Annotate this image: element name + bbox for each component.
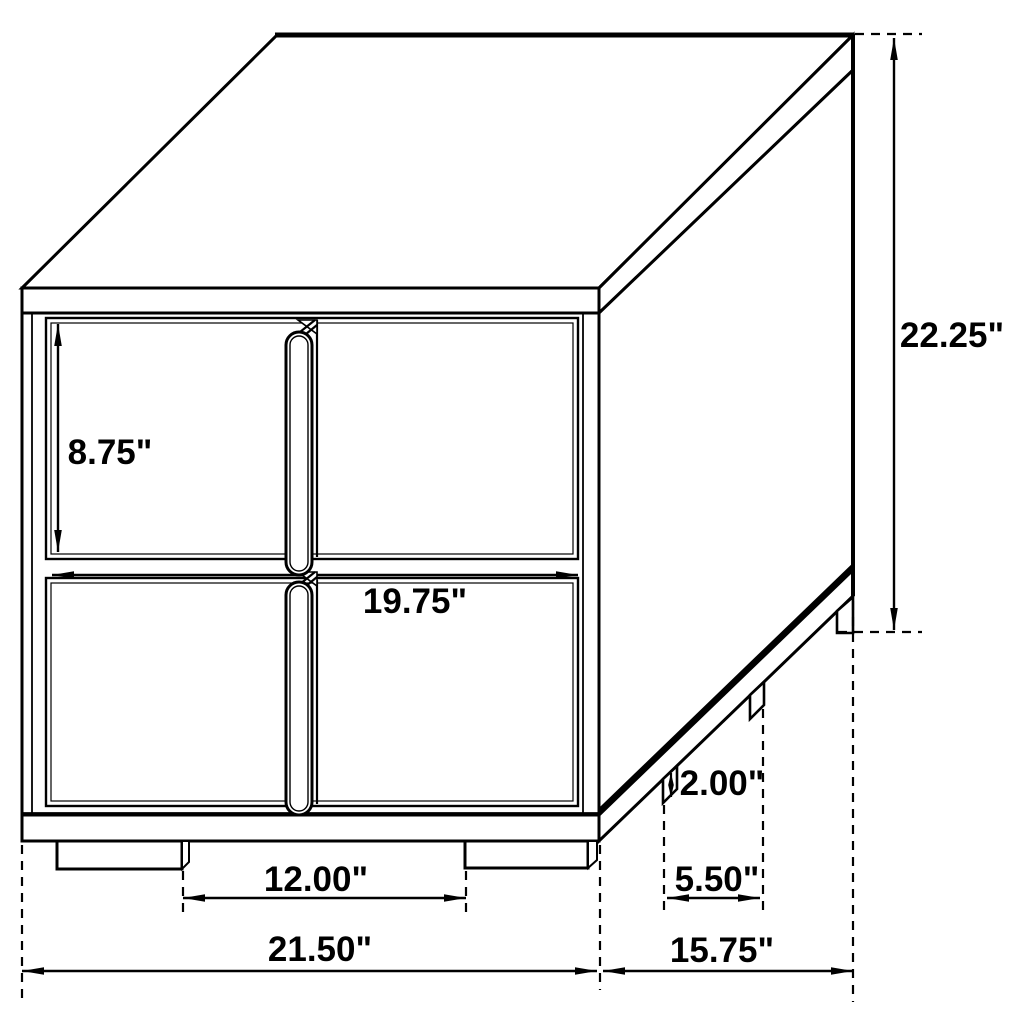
top-slab-front bbox=[22, 288, 599, 313]
drawer-height-label: 8.75" bbox=[68, 433, 153, 472]
overall-depth-label: 15.75" bbox=[670, 931, 774, 970]
front-left-leg-side bbox=[182, 841, 189, 869]
leg-height-label: 2.00" bbox=[680, 764, 765, 803]
drawer-handles bbox=[286, 320, 317, 815]
drawer-width-label: 19.75" bbox=[363, 582, 467, 621]
front-leg-spacing-label: 12.00" bbox=[264, 860, 368, 899]
overall-height-label: 22.25" bbox=[900, 316, 1004, 355]
front-right-leg-side bbox=[588, 841, 597, 868]
diagram-canvas: 8.75" 19.75" 22.25" 2.00" 5.50" 12.00" 2… bbox=[0, 0, 1024, 1024]
base-front-rail bbox=[22, 815, 599, 841]
front-right-leg bbox=[465, 841, 588, 868]
dimension-diagram: 8.75" 19.75" 22.25" 2.00" 5.50" 12.00" 2… bbox=[0, 0, 1024, 1024]
side-leg-spacing-label: 5.50" bbox=[675, 860, 760, 899]
front-left-leg bbox=[57, 841, 182, 869]
overall-width-label: 21.50" bbox=[268, 930, 372, 969]
